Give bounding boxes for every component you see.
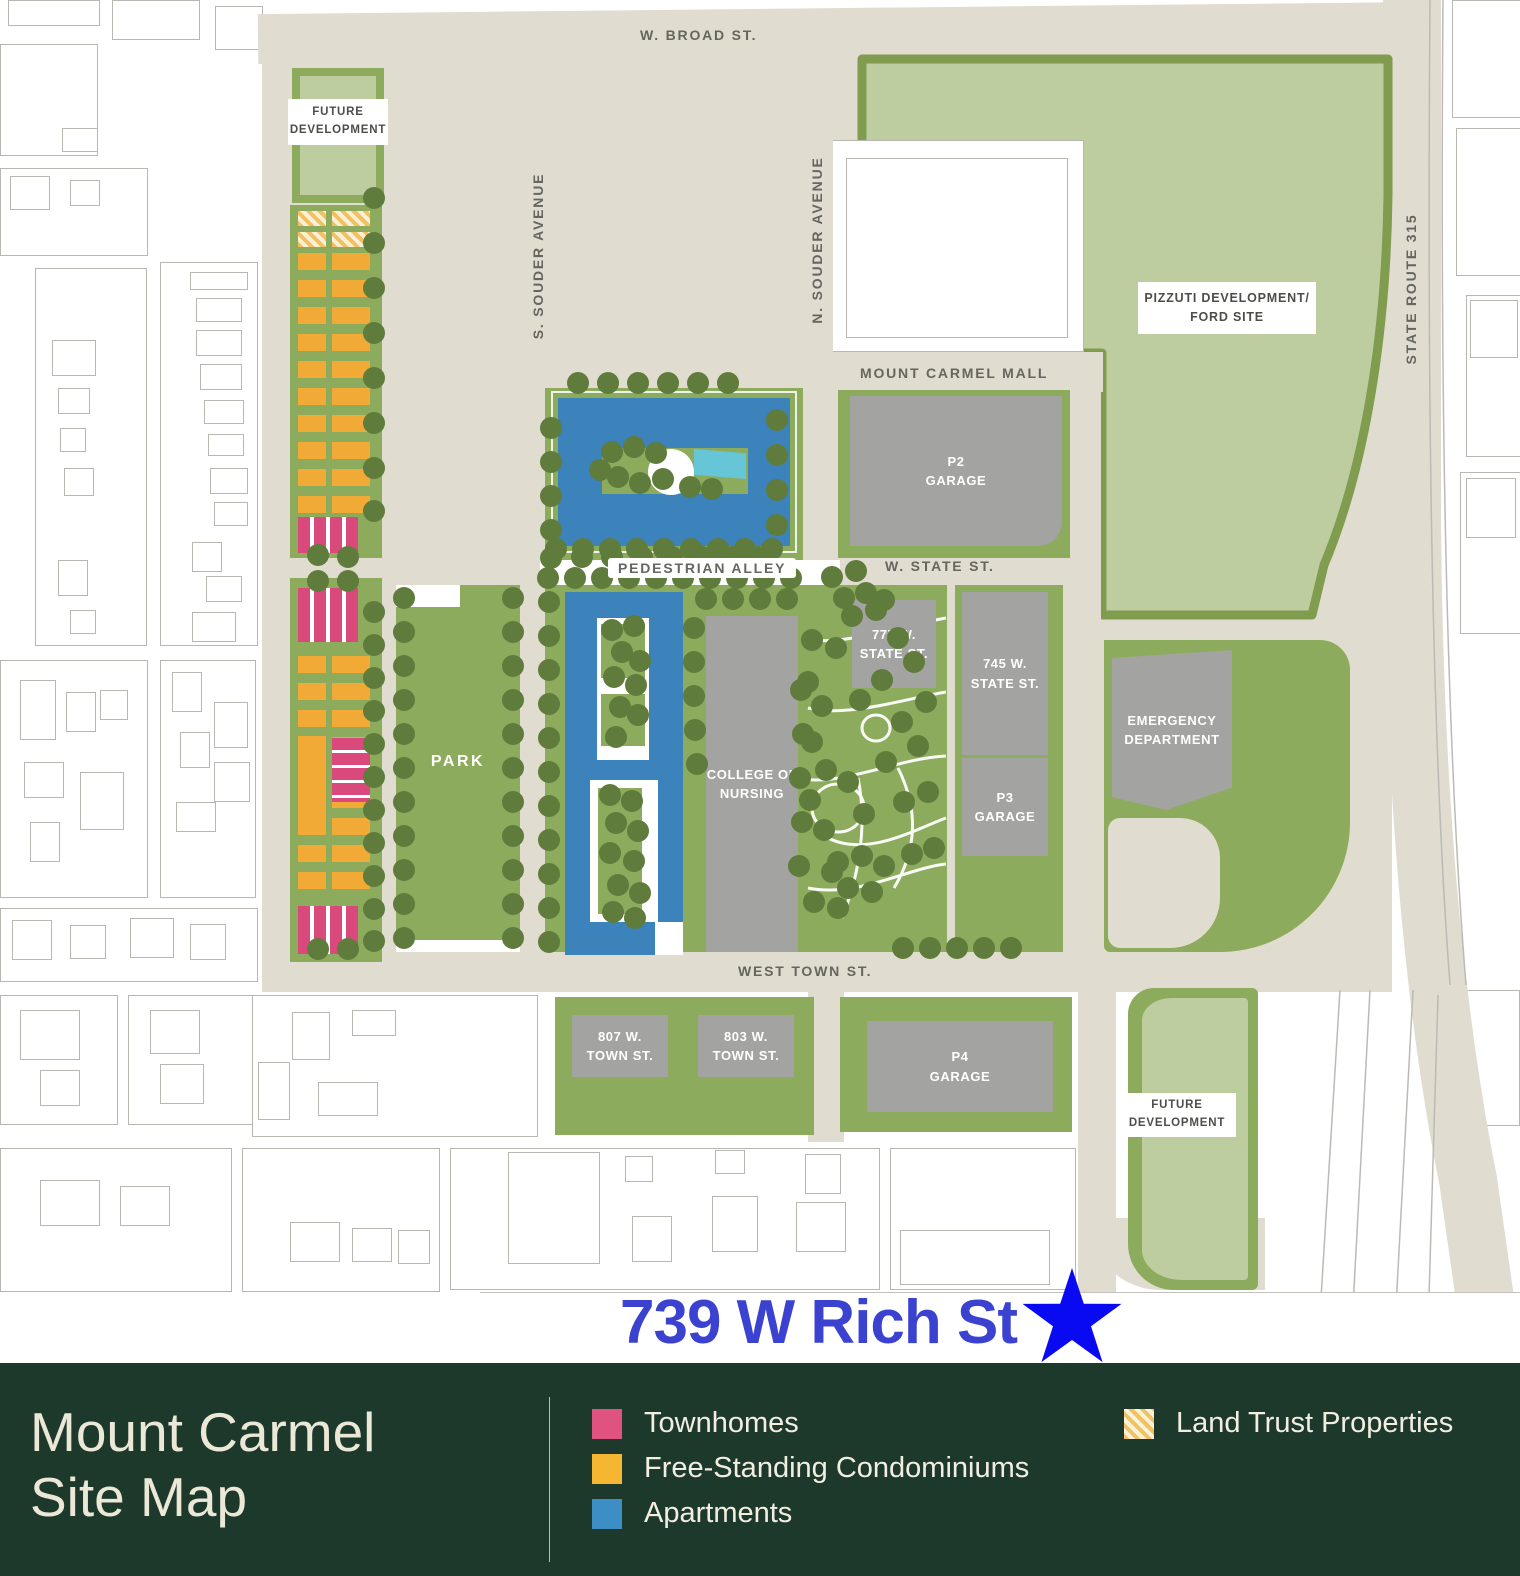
building-footprint xyxy=(10,176,50,210)
tree-icon xyxy=(538,625,560,647)
footer-divider xyxy=(549,1397,550,1562)
tree-icon xyxy=(627,820,649,842)
tree-icon xyxy=(540,451,562,473)
legend-label: Apartments xyxy=(644,1497,792,1530)
building-footprint xyxy=(20,1010,80,1060)
p2-label-line2: GARAGE xyxy=(926,471,987,491)
tree-icon xyxy=(683,685,705,707)
building-footprint xyxy=(508,1152,600,1264)
tree-icon xyxy=(827,851,849,873)
tree-icon xyxy=(393,655,415,677)
building-footprint xyxy=(100,690,128,720)
tree-icon xyxy=(538,727,560,749)
background-parcel xyxy=(242,1148,440,1292)
townhomes-swatch xyxy=(592,1409,622,1439)
p3-garage-building: P3 GARAGE xyxy=(962,758,1048,856)
tree-icon xyxy=(502,689,524,711)
tree-icon xyxy=(893,791,915,813)
building-745-state: 745 W. STATE ST. xyxy=(962,592,1048,755)
legend-item-townhomes: Townhomes xyxy=(592,1407,799,1440)
apartments-swatch xyxy=(592,1499,622,1529)
tree-icon xyxy=(363,865,385,887)
tree-icon xyxy=(766,409,788,431)
tree-icon xyxy=(363,799,385,821)
tree-icon xyxy=(788,855,810,877)
road-left-edge xyxy=(262,30,292,992)
label-line: DEVELOPMENT xyxy=(288,122,388,140)
tree-icon xyxy=(502,893,524,915)
building-footprint xyxy=(52,340,96,376)
building-footprint xyxy=(846,158,1068,338)
building-footprint xyxy=(130,918,174,958)
p4-garage-building: P4 GARAGE xyxy=(867,1021,1053,1112)
tree-icon xyxy=(799,789,821,811)
townhome-units xyxy=(298,588,358,642)
tree-icon xyxy=(502,621,524,643)
tree-icon xyxy=(502,723,524,745)
tree-icon xyxy=(502,791,524,813)
tree-icon xyxy=(815,759,837,781)
tree-icon xyxy=(973,937,995,959)
building-footprint xyxy=(715,1150,745,1174)
tree-icon xyxy=(603,666,625,688)
tree-icon xyxy=(621,790,643,812)
tree-icon xyxy=(875,751,897,773)
tree-icon xyxy=(901,843,923,865)
tree-icon xyxy=(307,938,329,960)
college-label-line2: NURSING xyxy=(720,784,784,804)
tree-icon xyxy=(623,615,645,637)
745-label-line1: 745 W. xyxy=(983,654,1027,674)
tree-icon xyxy=(363,930,385,952)
building-footprint xyxy=(398,1230,430,1264)
building-footprint xyxy=(192,612,236,642)
building-footprint xyxy=(190,924,226,960)
land-trust-swatch xyxy=(1124,1409,1154,1439)
building-footprint xyxy=(196,330,242,356)
tree-icon xyxy=(337,546,359,568)
street-label-west-town: WEST TOWN ST. xyxy=(738,963,872,979)
building-footprint xyxy=(120,1186,170,1226)
p4-label-line2: GARAGE xyxy=(930,1067,991,1087)
tree-icon xyxy=(537,567,559,589)
tree-icon xyxy=(393,893,415,915)
tree-icon xyxy=(538,693,560,715)
tree-icon xyxy=(861,881,883,903)
title-line1: Mount Carmel xyxy=(30,1400,375,1465)
tree-icon xyxy=(601,619,623,641)
building-footprint xyxy=(290,1222,340,1262)
tree-icon xyxy=(629,650,651,672)
tree-icon xyxy=(502,859,524,881)
p2-garage-building: P2 GARAGE xyxy=(850,396,1062,546)
building-footprint xyxy=(200,364,242,390)
tree-icon xyxy=(946,937,968,959)
address-annotation: 739 W Rich St xyxy=(620,1292,1017,1354)
tree-icon xyxy=(538,761,560,783)
background-parcel xyxy=(215,6,263,50)
tree-icon xyxy=(825,637,847,659)
building-footprint xyxy=(214,762,250,802)
tree-icon xyxy=(801,731,823,753)
p3-label-line1: P3 xyxy=(996,788,1013,808)
building-footprint xyxy=(176,802,216,832)
tree-icon xyxy=(502,655,524,677)
building-footprint xyxy=(58,560,88,596)
tree-icon xyxy=(849,689,871,711)
tree-icon xyxy=(623,436,645,458)
tree-icon xyxy=(841,605,863,627)
tree-icon xyxy=(363,412,385,434)
emergency-label-line1: EMERGENCY xyxy=(1127,711,1216,731)
tree-icon xyxy=(865,599,887,621)
tree-icon xyxy=(766,479,788,501)
tree-icon xyxy=(502,825,524,847)
tree-icon xyxy=(393,723,415,745)
tree-icon xyxy=(1000,937,1022,959)
background-parcel xyxy=(35,268,147,646)
legend-label: Free-Standing Condominiums xyxy=(644,1452,1029,1485)
tree-icon xyxy=(605,726,627,748)
tree-icon xyxy=(538,897,560,919)
803-label-line2: TOWN ST. xyxy=(713,1046,780,1066)
legend-label: Land Trust Properties xyxy=(1176,1407,1453,1440)
tree-icon xyxy=(599,842,621,864)
tree-icon xyxy=(363,232,385,254)
legend-item-condominiums: Free-Standing Condominiums xyxy=(592,1452,1029,1485)
emergency-parking xyxy=(1108,818,1220,948)
tree-icon xyxy=(907,735,929,757)
apartment-notch xyxy=(655,922,683,955)
tree-icon xyxy=(766,444,788,466)
tree-icon xyxy=(597,372,619,394)
college-of-nursing-building: COLLEGE OF NURSING xyxy=(706,616,798,952)
p4-label-line1: P4 xyxy=(951,1047,968,1067)
tree-icon xyxy=(363,898,385,920)
tree-icon xyxy=(687,372,709,394)
page-title: Mount Carmel Site Map xyxy=(30,1400,375,1530)
street-label-n-souder: N. SOUDER AVENUE xyxy=(809,120,825,360)
tree-icon xyxy=(363,634,385,656)
building-footprint xyxy=(206,576,242,602)
tree-icon xyxy=(538,829,560,851)
label-line: PIZZUTI DEVELOPMENT/ xyxy=(1138,289,1316,308)
legend-label: Townhomes xyxy=(644,1407,799,1440)
label-line: FUTURE xyxy=(288,104,388,122)
building-footprint xyxy=(712,1196,758,1252)
tree-icon xyxy=(627,704,649,726)
tree-icon xyxy=(363,700,385,722)
tree-icon xyxy=(337,570,359,592)
condo-unit-long xyxy=(298,736,326,828)
street-label-s-souder: S. SOUDER AVENUE xyxy=(530,136,546,376)
tree-icon xyxy=(363,187,385,209)
tree-icon xyxy=(538,863,560,885)
tree-icon xyxy=(923,837,945,859)
building-footprint xyxy=(70,610,96,634)
tree-icon xyxy=(887,627,909,649)
tree-icon xyxy=(657,372,679,394)
tree-icon xyxy=(892,937,914,959)
tree-icon xyxy=(686,753,708,775)
building-footprint xyxy=(632,1216,672,1262)
tree-icon xyxy=(853,803,875,825)
building-footprint xyxy=(796,1202,846,1252)
label-line: FORD SITE xyxy=(1138,308,1316,327)
tree-icon xyxy=(540,547,562,569)
tree-icon xyxy=(845,560,867,582)
tree-icon xyxy=(538,931,560,953)
tree-icon xyxy=(776,588,798,610)
title-line2: Site Map xyxy=(30,1465,375,1530)
condominiums-swatch xyxy=(592,1454,622,1484)
807-label-line2: TOWN ST. xyxy=(587,1046,654,1066)
tree-icon xyxy=(363,733,385,755)
future-dev-bottom-inner xyxy=(1142,998,1248,1280)
land-trust-units xyxy=(298,211,326,226)
building-footprint xyxy=(192,542,222,572)
future-dev-bottom-label: FUTURE DEVELOPMENT xyxy=(1118,1093,1236,1137)
emergency-label-line2: DEPARTMENT xyxy=(1124,730,1219,750)
tree-icon xyxy=(919,937,941,959)
pizzuti-label: PIZZUTI DEVELOPMENT/ FORD SITE xyxy=(1138,282,1316,334)
tree-icon xyxy=(766,514,788,536)
building-footprint xyxy=(625,1156,653,1182)
condo-units xyxy=(298,253,326,513)
building-footprint xyxy=(318,1082,378,1116)
tree-icon xyxy=(722,588,744,610)
tree-icon xyxy=(917,781,939,803)
building-footprint xyxy=(258,1062,290,1120)
tree-icon xyxy=(679,476,701,498)
map-canvas: P2 GARAGE COLLEGE OF NURSING xyxy=(0,0,1520,1363)
building-footprint xyxy=(196,298,242,322)
tree-icon xyxy=(695,588,717,610)
building-footprint xyxy=(292,1012,330,1060)
building-footprint xyxy=(805,1154,841,1194)
site-map-page: P2 GARAGE COLLEGE OF NURSING xyxy=(0,0,1520,1576)
street-label-pedestrian-alley: PEDESTRIAN ALLEY xyxy=(608,558,796,578)
tree-icon xyxy=(540,519,562,541)
tree-icon xyxy=(801,629,823,651)
tree-icon xyxy=(827,897,849,919)
tree-icon xyxy=(891,711,913,733)
building-footprint xyxy=(70,925,106,959)
building-footprint xyxy=(208,434,244,456)
tree-icon xyxy=(538,659,560,681)
tree-icon xyxy=(363,832,385,854)
tree-icon xyxy=(599,784,621,806)
street-label-state-route-315: STATE ROUTE 315 xyxy=(1403,179,1419,399)
tree-icon xyxy=(915,691,937,713)
tree-icon xyxy=(363,457,385,479)
p2-label-line1: P2 xyxy=(947,452,964,472)
land-trust-units xyxy=(298,232,326,247)
tree-icon xyxy=(363,601,385,623)
tree-icon xyxy=(538,795,560,817)
courtyard-pool xyxy=(694,449,746,479)
tree-icon xyxy=(540,485,562,507)
tree-icon xyxy=(502,927,524,949)
college-label-line1: COLLEGE OF xyxy=(707,765,798,785)
tree-icon xyxy=(629,882,651,904)
star-icon xyxy=(1022,1264,1122,1366)
tree-icon xyxy=(571,546,593,568)
building-footprint xyxy=(214,702,248,748)
tree-icon xyxy=(701,478,723,500)
building-footprint xyxy=(190,272,248,290)
tree-icon xyxy=(645,442,667,464)
tree-icon xyxy=(797,671,819,693)
tree-icon xyxy=(791,811,813,833)
803-label-line1: 803 W. xyxy=(724,1027,768,1047)
tree-icon xyxy=(363,277,385,299)
building-footprint xyxy=(62,128,98,152)
tree-icon xyxy=(837,877,859,899)
tree-icon xyxy=(393,791,415,813)
building-footprint xyxy=(150,1010,200,1054)
tree-icon xyxy=(717,372,739,394)
tree-icon xyxy=(821,566,843,588)
tree-icon xyxy=(607,874,629,896)
future-dev-top-label: FUTURE DEVELOPMENT xyxy=(288,99,388,145)
tree-icon xyxy=(363,500,385,522)
building-footprint xyxy=(180,732,210,768)
background-parcel xyxy=(112,0,200,40)
park-path xyxy=(396,940,520,952)
tree-icon xyxy=(602,901,624,923)
tree-icon xyxy=(393,689,415,711)
tree-icon xyxy=(564,567,586,589)
tree-icon xyxy=(871,669,893,691)
tree-icon xyxy=(502,587,524,609)
legend-item-apartments: Apartments xyxy=(592,1497,792,1530)
tree-icon xyxy=(837,771,859,793)
building-footprint xyxy=(214,502,248,526)
tree-icon xyxy=(538,591,560,613)
p3-label-line2: GARAGE xyxy=(975,807,1036,827)
legend-item-land-trust: Land Trust Properties xyxy=(1124,1407,1453,1440)
tree-icon xyxy=(683,651,705,673)
tree-icon xyxy=(749,588,771,610)
background-parcel xyxy=(8,0,100,26)
807-label-line1: 807 W. xyxy=(598,1027,642,1047)
tree-icon xyxy=(813,819,835,841)
building-footprint xyxy=(20,680,56,740)
park-label: PARK xyxy=(396,753,520,771)
building-footprint xyxy=(160,1064,204,1104)
tree-icon xyxy=(625,674,647,696)
tree-icon xyxy=(393,621,415,643)
tree-icon xyxy=(851,845,873,867)
tree-icon xyxy=(803,891,825,913)
tree-icon xyxy=(307,544,329,566)
building-footprint xyxy=(80,772,124,830)
building-footprint xyxy=(60,428,86,452)
background-parcel xyxy=(0,1148,232,1292)
building-footprint xyxy=(24,762,64,798)
tree-icon xyxy=(789,767,811,789)
tree-icon xyxy=(627,372,649,394)
tree-icon xyxy=(393,927,415,949)
building-footprint xyxy=(58,388,90,414)
label-line: DEVELOPMENT xyxy=(1118,1115,1236,1133)
tree-icon xyxy=(567,372,589,394)
tree-icon xyxy=(393,825,415,847)
building-footprint xyxy=(352,1228,392,1262)
street-label-mount-carmel-mall: MOUNT CARMEL MALL xyxy=(860,365,1048,381)
tree-icon xyxy=(363,766,385,788)
building-footprint xyxy=(70,180,100,206)
building-footprint xyxy=(172,672,202,712)
745-label-line2: STATE ST. xyxy=(971,674,1039,694)
building-footprint xyxy=(204,400,244,424)
street-label-w-state: W. STATE ST. xyxy=(885,558,995,574)
tree-icon xyxy=(589,459,611,481)
tree-icon xyxy=(605,812,627,834)
land-trust-units xyxy=(332,211,370,226)
building-footprint xyxy=(40,1180,100,1226)
tree-icon xyxy=(652,468,674,490)
emergency-department-building: EMERGENCY DEPARTMENT xyxy=(1112,650,1232,810)
building-footprint xyxy=(352,1010,396,1036)
tree-icon xyxy=(873,855,895,877)
tree-icon xyxy=(684,719,706,741)
tree-icon xyxy=(540,417,562,439)
tree-icon xyxy=(363,367,385,389)
building-803-town: 803 W. TOWN ST. xyxy=(698,1015,794,1077)
building-footprint xyxy=(30,822,60,862)
building-footprint xyxy=(12,920,52,960)
tree-icon xyxy=(393,859,415,881)
tree-icon xyxy=(363,322,385,344)
tree-icon xyxy=(811,695,833,717)
label-line: FUTURE xyxy=(1118,1097,1236,1115)
tree-icon xyxy=(337,938,359,960)
tree-icon xyxy=(623,850,645,872)
tree-icon xyxy=(683,617,705,639)
building-footprint xyxy=(64,468,94,496)
street-label-w-broad: W. BROAD ST. xyxy=(640,27,757,43)
tree-icon xyxy=(624,907,646,929)
building-footprint xyxy=(210,468,248,494)
tree-icon xyxy=(307,570,329,592)
tree-icon xyxy=(629,472,651,494)
tree-icon xyxy=(363,667,385,689)
tree-icon xyxy=(903,651,925,673)
building-807-town: 807 W. TOWN ST. xyxy=(572,1015,668,1077)
tree-icon xyxy=(393,587,415,609)
building-footprint xyxy=(66,692,96,732)
building-footprint xyxy=(40,1070,80,1106)
